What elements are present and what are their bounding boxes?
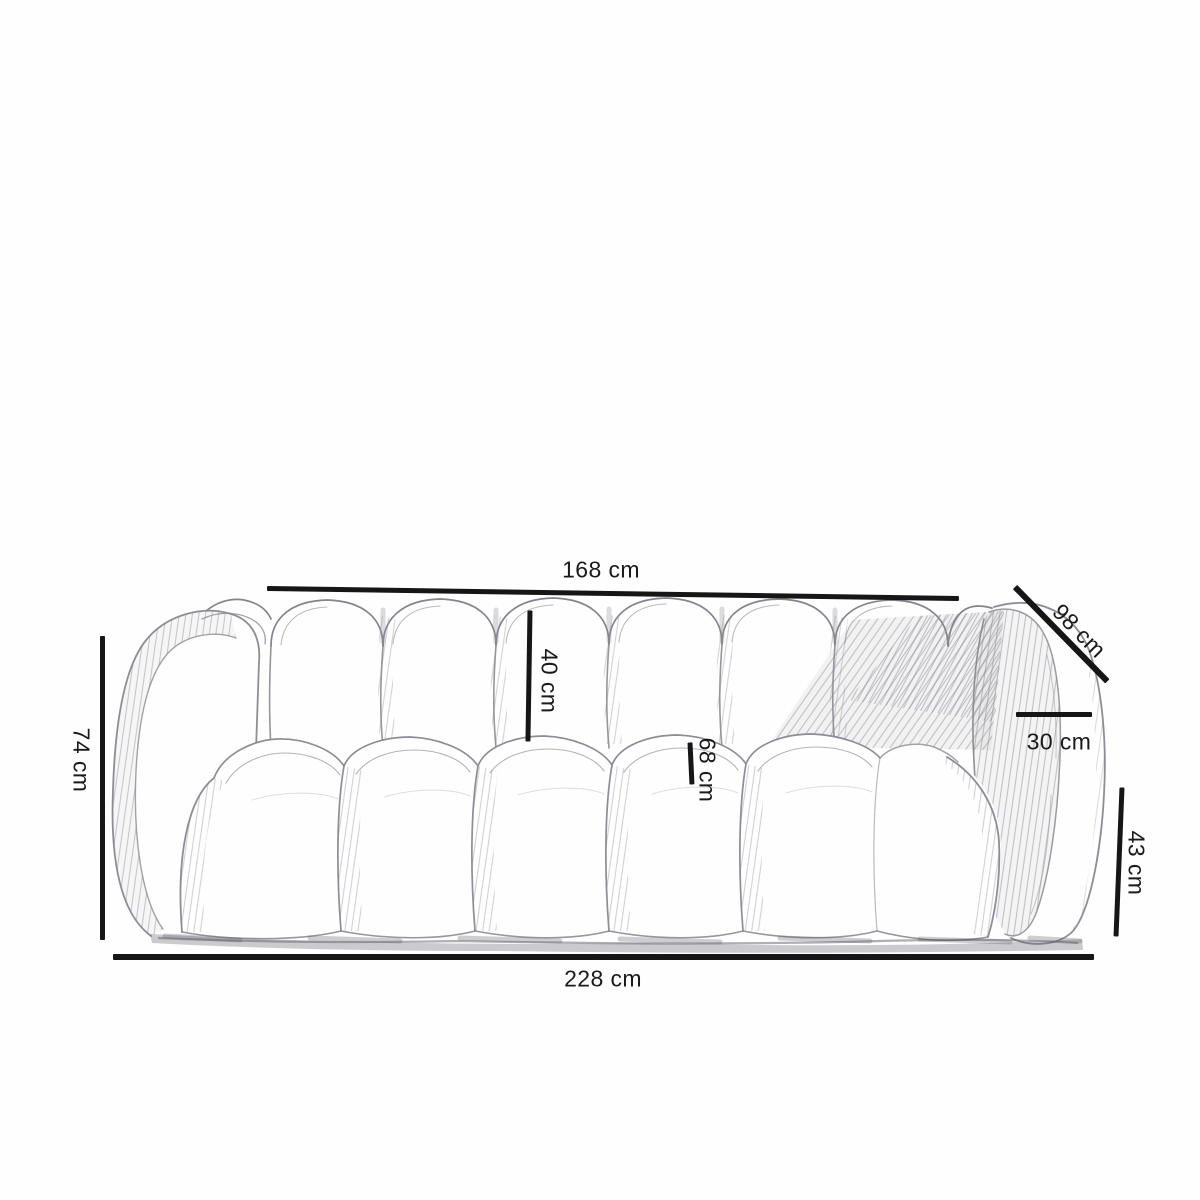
sofa-seat xyxy=(180,734,1001,940)
dim-label-overall-height: 74 cm xyxy=(70,728,93,793)
dim-label-armrest-side-height: 43 cm xyxy=(1125,831,1148,896)
dim-label-backrest-cushion-height: 40 cm xyxy=(538,649,561,714)
corner-shadow xyxy=(768,611,1004,750)
dim-line-armrest-top-width xyxy=(1016,712,1092,717)
sofa-sketch xyxy=(0,0,1200,1200)
dim-label-seat-cushion-height: 68 cm xyxy=(696,738,719,803)
dim-label-overall-width: 228 cm xyxy=(564,968,642,991)
sofa-dimension-diagram: 168 cm 98 cm 30 cm 43 cm 228 cm 74 cm 40… xyxy=(0,0,1200,1200)
dim-line-overall-height xyxy=(100,636,105,940)
dim-line-overall-width xyxy=(113,954,1094,960)
dim-label-armrest-top-width: 30 cm xyxy=(1027,731,1092,754)
dim-label-seat-width: 168 cm xyxy=(562,559,640,582)
